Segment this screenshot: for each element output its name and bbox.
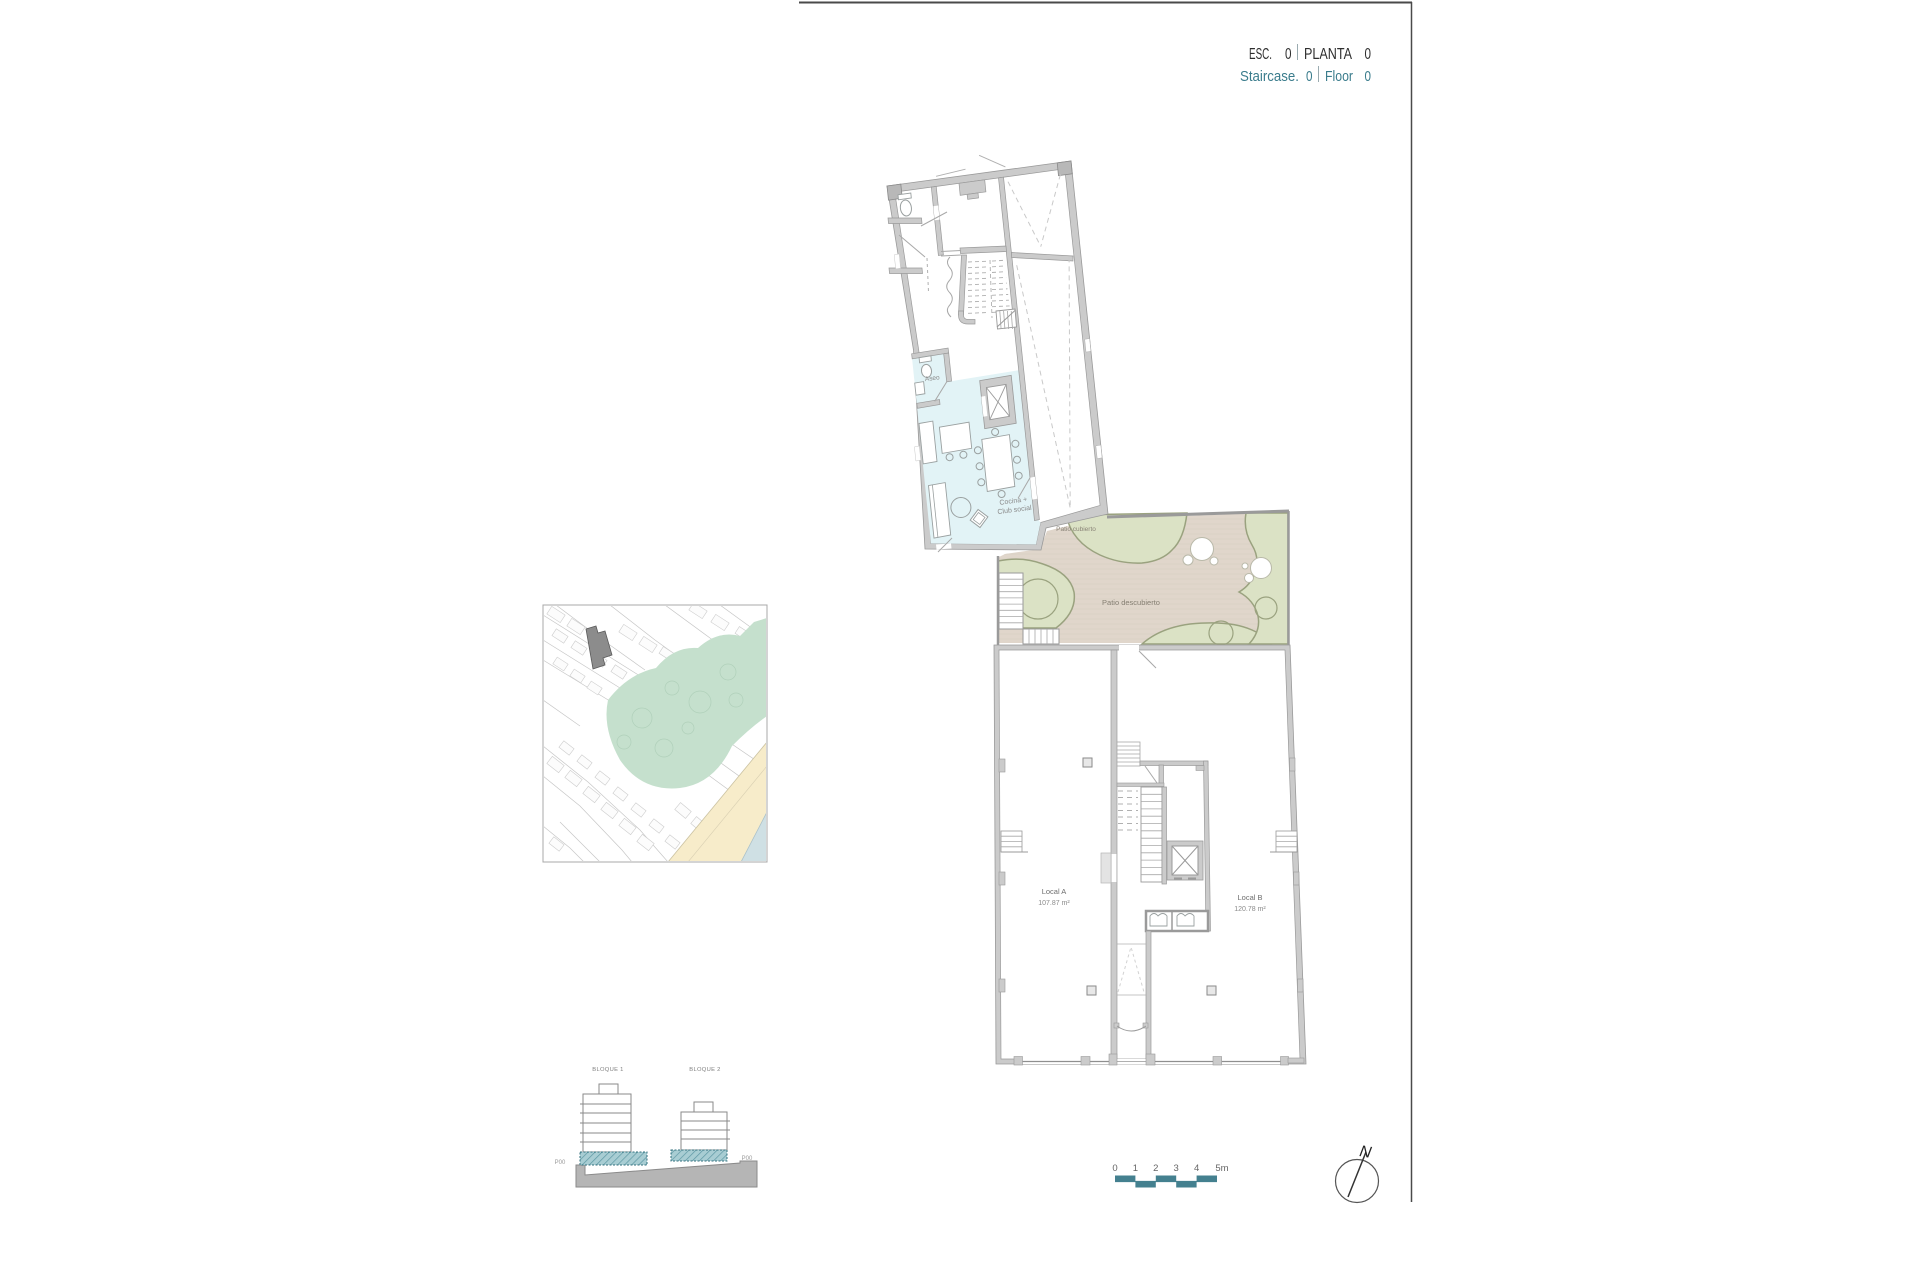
svg-text:120.78 m²: 120.78 m² bbox=[1234, 906, 1266, 913]
svg-text:P00: P00 bbox=[742, 1156, 753, 1162]
svg-text:ESC.: ESC. bbox=[1249, 46, 1272, 63]
svg-text:Floor: Floor bbox=[1325, 68, 1353, 85]
svg-text:BLOQUE 2: BLOQUE 2 bbox=[689, 1067, 720, 1073]
svg-text:5m: 5m bbox=[1215, 1163, 1228, 1174]
svg-text:4: 4 bbox=[1194, 1163, 1199, 1174]
svg-text:107.87 m²: 107.87 m² bbox=[1038, 900, 1070, 907]
svg-text:1: 1 bbox=[1133, 1163, 1138, 1174]
svg-text:Patio cubierto: Patio cubierto bbox=[1056, 526, 1096, 533]
svg-text:P00: P00 bbox=[555, 1160, 566, 1166]
svg-text:0: 0 bbox=[1306, 68, 1313, 85]
svg-text:Local B: Local B bbox=[1237, 893, 1262, 902]
svg-text:Patio descubierto: Patio descubierto bbox=[1102, 598, 1160, 607]
svg-text:Local A: Local A bbox=[1042, 887, 1067, 896]
svg-text:0: 0 bbox=[1365, 68, 1372, 85]
svg-text:Staircase.: Staircase. bbox=[1240, 68, 1299, 85]
svg-text:2: 2 bbox=[1153, 1163, 1158, 1174]
svg-text:3: 3 bbox=[1174, 1163, 1179, 1174]
svg-text:PLANTA: PLANTA bbox=[1304, 46, 1352, 63]
svg-text:0: 0 bbox=[1365, 46, 1372, 63]
svg-text:0: 0 bbox=[1112, 1163, 1117, 1174]
svg-text:BLOQUE 1: BLOQUE 1 bbox=[592, 1067, 623, 1073]
svg-text:0: 0 bbox=[1285, 46, 1292, 63]
